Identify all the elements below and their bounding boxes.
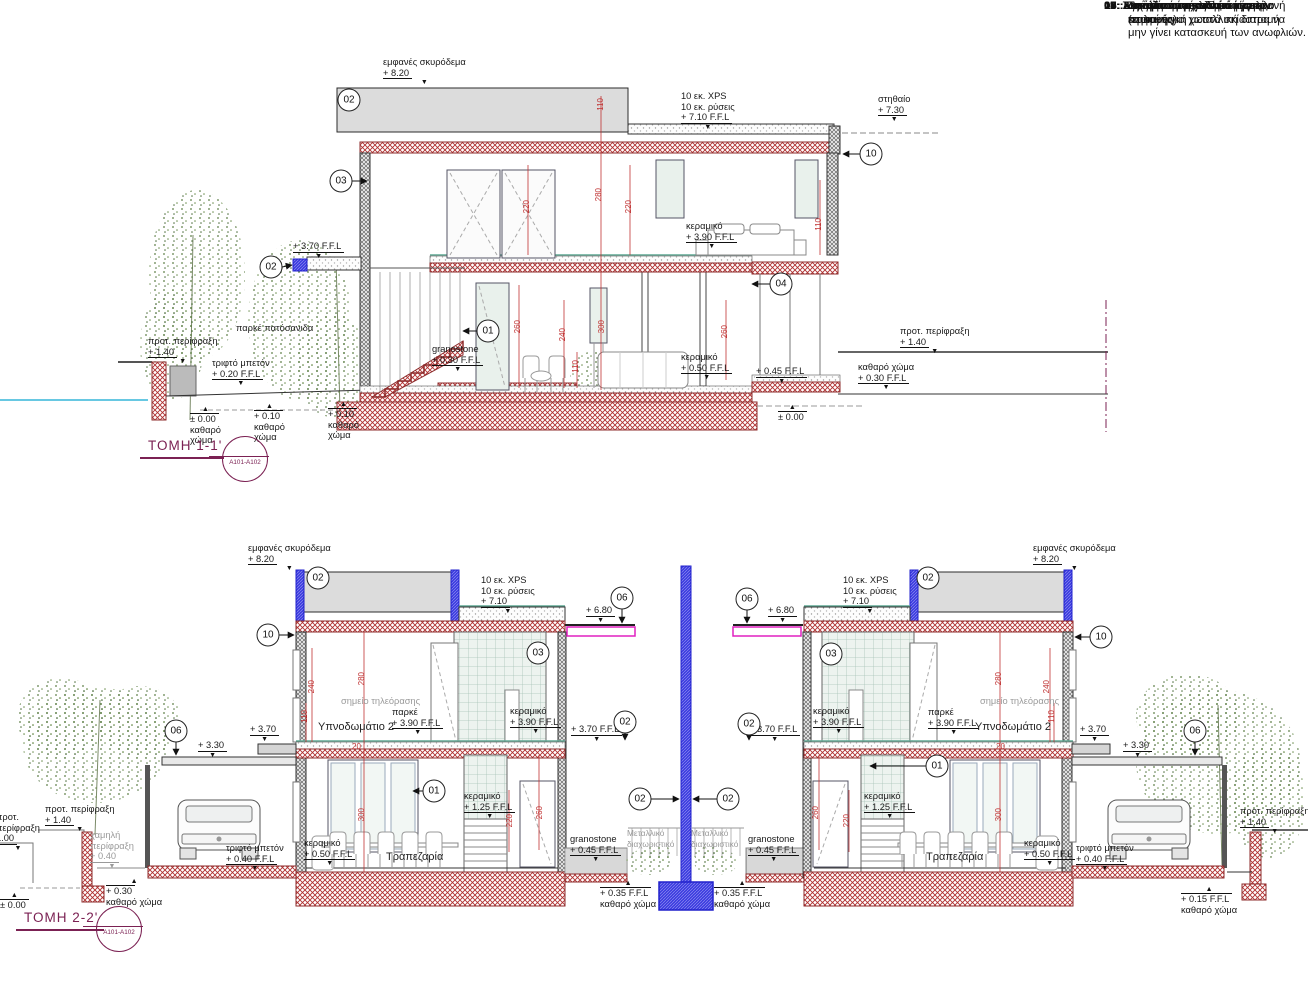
keynote-circle: 10 (257, 624, 280, 647)
annotation-text: Υπνοδωμάτιο 2 (975, 722, 1051, 733)
dimension-label: 260 (513, 320, 522, 333)
level-marker: παρκέ + 3.90 F.F.L (928, 707, 979, 736)
keynote-circle: 02 (717, 788, 740, 811)
level-marker: κεραμικό + 3.90 F.F.L (813, 706, 864, 735)
level-marker: granostone + 0.45 F.F.L (748, 834, 799, 863)
dimension-label: 20 (352, 742, 361, 751)
section-1-ref-circle: A101-A102 (222, 436, 268, 482)
dimension-label: 220 (522, 200, 531, 213)
annotation-text: σημείο τηλεόρασης (341, 696, 420, 707)
dimension-label: 240 (307, 680, 316, 693)
dimension-label: 300 (994, 808, 1003, 821)
dimension-label: 20 (996, 742, 1005, 751)
section-2-ref: A101-A102 (97, 929, 141, 936)
level-marker: κεραμικό + 0.50 F.F.L (681, 352, 732, 381)
level-marker: καθαρό χώμα + 0.30 F.F.L (858, 362, 914, 391)
dimension-label: 110 (300, 710, 309, 723)
dimension-label: 240 (1042, 680, 1051, 693)
keynote-circle: 02 (629, 788, 652, 811)
level-marker: granostone + 0.30 F.F.L (432, 344, 483, 373)
keynote-circle: 06 (1184, 720, 1207, 743)
section-1-drawing (0, 88, 1108, 432)
level-marker: + 3.30 (1123, 740, 1152, 759)
site-right (757, 300, 1108, 432)
annotation-text: παρκέ πατόσανιδα (236, 323, 313, 334)
annotation-text: Μεταλλικόδιαχωριστικό (691, 828, 738, 849)
dimension-label: 260 (535, 806, 544, 819)
level-marker: + 0.35 F.F.L καθαρό χώμα (600, 880, 656, 909)
level-marker: χαμηλή περίφραξη + 0.40 (90, 830, 134, 870)
annotation-text: σημείο τηλεόρασης (980, 696, 1059, 707)
dimension-label: 280 (594, 188, 603, 201)
level-marker: 10 εκ. XPS 10 εκ. ρύσεις + 7.10 F.F.L (681, 91, 735, 131)
annotation-text: Υπνοδωμάτιο 2 (318, 722, 394, 733)
annotation-text: Μεταλλικόδιαχωριστικό (627, 828, 674, 849)
dimension-label: 110 (571, 360, 580, 373)
level-marker: + 0.10 καθαρό χώμα (328, 401, 359, 441)
level-marker: τριφτό μπετόν + 0.40 F.F.L (226, 843, 284, 872)
level-marker: εμφανές σκυρόδεμα + 8.20 (383, 57, 466, 86)
level-marker: 10 εκ. XPS 10 εκ. ρύσεις + 7.10 (843, 575, 897, 615)
drawing-canvas: 04 : Επένδυση φυσικής πέτρας επιλογής05 … (0, 0, 1308, 981)
level-marker: προτ. περίφραξη + 1.40 (900, 326, 970, 355)
keynote-circle: 03 (330, 170, 353, 193)
level-marker: κεραμικό + 1.25 F.F.L (864, 791, 915, 820)
level-marker: ± 0.00 (778, 404, 807, 423)
level-marker: παρκέ + 3.90 F.F.L (392, 707, 443, 736)
dimension-label: 280 (994, 672, 1003, 685)
level-marker: + 0.10 καθαρό χώμα (254, 403, 285, 443)
dimension-label: 260 (811, 806, 820, 819)
dimension-label: 110 (596, 98, 605, 111)
level-marker: granostone + 0.45 F.F.L (570, 834, 621, 863)
keynote-circle: 01 (926, 755, 949, 778)
keynote-circle: 02 (738, 713, 761, 736)
dimension-label: 220 (624, 200, 633, 213)
level-marker: εμφανές σκυρόδεμα + 8.20 (1033, 543, 1116, 572)
keynote-circle: 02 (338, 89, 361, 112)
level-marker: προτ. περίφραξη 1.00 (0, 812, 40, 852)
keynote-circle: 06 (611, 587, 634, 610)
level-marker: 10 εκ. XPS 10 εκ. ρύσεις + 7.10 (481, 575, 535, 615)
annotation-text: Τραπεζαρία (926, 852, 983, 863)
level-marker: + 0.30 καθαρό χώμα (106, 878, 162, 907)
keynote-circle: 03 (820, 643, 843, 666)
section-2-ref-circle: A101-A102 (96, 906, 142, 952)
level-marker: κεραμικό + 0.50 F.F.L (304, 838, 355, 867)
dimension-label: 220 (505, 814, 514, 827)
section-1-title: ΤΟΜΗ 1-1' (148, 438, 222, 453)
level-marker: προτ. περίφραξη + 1.40 (148, 336, 218, 365)
keynote-circle: 04 (770, 273, 793, 296)
level-marker: + 0.45 F.F.L (756, 366, 807, 385)
keynote-circle: 03 (527, 642, 550, 665)
dimension-label: 110 (814, 218, 823, 231)
level-marker: στηθαίο + 7.30 (878, 94, 910, 123)
dimension-label: 240 (558, 328, 567, 341)
keynote-circle: 02 (917, 567, 940, 590)
roof-slab (337, 88, 940, 154)
level-marker: προτ. περίφραξη + 1.40 (1240, 806, 1308, 835)
level-marker: κεραμικό + 0.50 F.F.L (1024, 838, 1075, 867)
level-marker: κεραμικό + 3.90 F.F.L (686, 221, 737, 250)
dimension-label: 220 (842, 814, 851, 827)
annotation-text: Τραπεζαρία (386, 852, 443, 863)
section-2-title-underline (16, 929, 104, 931)
level-marker: κεραμικό + 3.90 F.F.L (510, 706, 561, 735)
level-marker: προτ. περίφραξη + 1.40 (45, 804, 115, 833)
level-marker: + 3.30 (198, 740, 227, 759)
keynote-circle: 06 (736, 588, 759, 611)
level-marker: + 0.35 F.F.L καθαρό χώμα (714, 880, 770, 909)
level-marker: + 3.70 (1080, 724, 1109, 743)
level-marker: + 3.70 F.F.L (293, 241, 344, 260)
dimension-label: 280 (357, 672, 366, 685)
keynote-circle: 02 (260, 256, 283, 279)
level-marker: + 0.15 F.F.L καθαρό χώμα (1181, 886, 1237, 915)
dimension-label: 300 (357, 808, 366, 821)
dimension-label: 300 (597, 320, 606, 333)
level-marker: + 3.70 (250, 724, 279, 743)
dimension-label: 260 (720, 325, 729, 338)
level-marker: τριφτό μπετόν + 0.40 F.F.L (1076, 843, 1134, 872)
staircase (370, 268, 465, 397)
section-1-title-underline (140, 457, 224, 459)
level-marker: + 6.80 (586, 605, 615, 624)
keynote-circle: 01 (477, 320, 500, 343)
note-item: 11: Τοιχοία από σανιδωτό μπετόν (εμφανές… (1104, 0, 1306, 27)
ground-slab (337, 386, 757, 430)
level-marker: + 6.80 (768, 605, 797, 624)
keynote-circle: 10 (1090, 626, 1113, 649)
keynote-circle: 10 (860, 143, 883, 166)
level-marker: τριφτό μπετόν + 0.20 F.F.L (212, 358, 270, 387)
keynote-circle: 01 (423, 780, 446, 803)
keynote-circle: 06 (165, 720, 188, 743)
keynote-circle: 02 (614, 711, 637, 734)
section-1-ref: A101-A102 (223, 459, 267, 466)
section-2-title: ΤΟΜΗ 2-2' (24, 910, 98, 925)
keynote-circle: 02 (307, 567, 330, 590)
level-marker: ± 0.00 (0, 892, 29, 911)
